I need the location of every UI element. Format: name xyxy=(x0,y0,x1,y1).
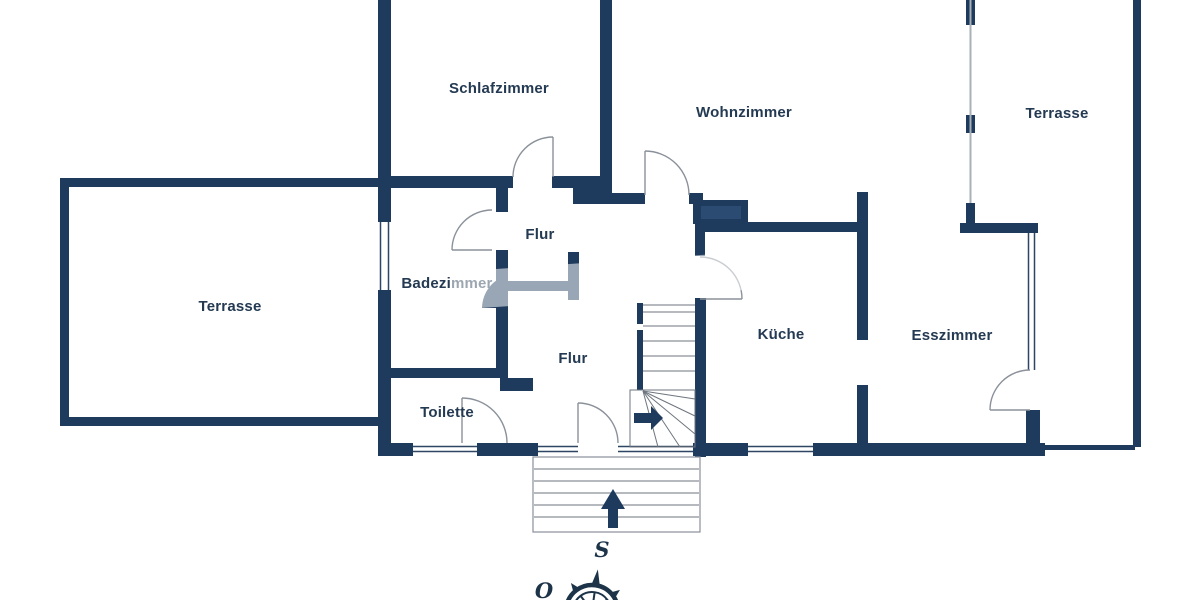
chimney-inner xyxy=(701,206,741,219)
room-label-flur-lower: Flur xyxy=(558,350,587,367)
walls xyxy=(60,0,1141,457)
room-label-schlafzimmer: Schlafzimmer xyxy=(449,80,549,97)
room-label-wohnzimmer: Wohnzimmer xyxy=(696,104,792,121)
compass-south-label: S xyxy=(594,537,609,562)
room-label-kueche: Küche xyxy=(758,326,805,343)
room-label-terrasse-right: Terrasse xyxy=(1025,105,1088,122)
room-label-badezimmer: Badezimmer xyxy=(401,275,492,292)
room-label-flur-upper: Flur xyxy=(525,226,554,243)
compass-east-label: O xyxy=(535,578,554,600)
stairs-direction-arrow-icon xyxy=(634,406,663,430)
room-label-terrasse-left: Terrasse xyxy=(198,298,261,315)
floor-plan-svg: S O Schlafzimmer Wohnzimmer Terrasse Ter… xyxy=(0,0,1200,600)
room-label-toilette: Toilette xyxy=(420,404,474,421)
floor-plan-page: S O Schlafzimmer Wohnzimmer Terrasse Ter… xyxy=(0,0,1200,600)
compass-rose: S O xyxy=(535,537,640,600)
room-labels: Schlafzimmer Wohnzimmer Terrasse Terrass… xyxy=(198,80,1088,421)
room-label-esszimmer: Esszimmer xyxy=(911,327,992,344)
entrance-steps xyxy=(533,457,700,532)
